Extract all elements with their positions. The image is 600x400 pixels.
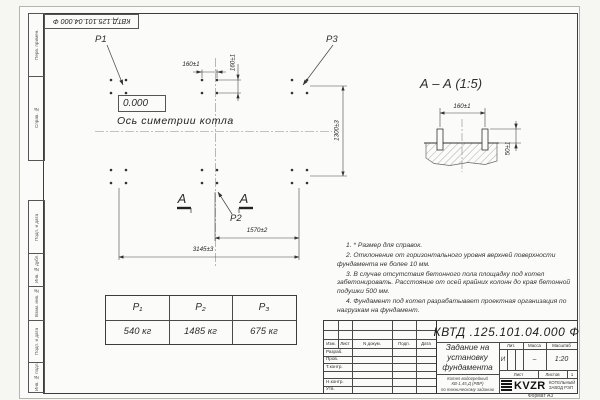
kvzr-logo-icon bbox=[501, 380, 512, 391]
plan-centerlines bbox=[95, 58, 332, 268]
plan-dim-160-horizontal bbox=[193, 70, 226, 79]
point-label-p1: P1 bbox=[95, 34, 107, 45]
row-label-nkontr: Н.контр. bbox=[326, 379, 344, 384]
mass-header: Масса bbox=[523, 342, 546, 349]
section-view-title: А – А (1:5) bbox=[396, 76, 506, 91]
plan-dim-1300 bbox=[310, 86, 347, 176]
dim-label-1570: 1570±2 bbox=[237, 227, 277, 234]
drawing-sheet: kvzr.ru kvzr.ru kvzr.ru kvzr.ru kvzr.ru … bbox=[0, 0, 600, 400]
note-4: 4. Фундамент под котел разрабатывает про… bbox=[337, 298, 580, 316]
sheets-label: Листов bbox=[538, 370, 567, 378]
col-header-podp: Подп. bbox=[392, 339, 416, 348]
logo-text: KVZR bbox=[514, 379, 548, 393]
dim-label-160h: 160±1 bbox=[173, 61, 209, 68]
section-letter-right: А bbox=[236, 191, 252, 205]
company-line: ЗАВОД РЭП bbox=[549, 385, 575, 390]
drawing-title-line: установку bbox=[436, 353, 499, 363]
load-table-value-p1: 540 кг bbox=[106, 320, 169, 343]
point-label-p3: P3 bbox=[326, 34, 338, 45]
load-table: P₁ P₂ P₃ 540 кг 1485 кг 675 кг bbox=[105, 295, 297, 345]
col-header-list: Лист bbox=[338, 339, 352, 348]
sheets-value: 1 bbox=[567, 370, 577, 378]
dim-label-3145: 3145±3 bbox=[183, 246, 223, 253]
drawing-title: Задание на установку фундамента bbox=[436, 343, 499, 373]
sheet-label: Лист bbox=[499, 370, 538, 378]
load-table-value-p2: 1485 кг bbox=[169, 320, 232, 343]
dim-label-1300: 1300±3 bbox=[334, 113, 341, 149]
section-letter-left: А bbox=[174, 191, 190, 205]
anchor-bolt bbox=[482, 129, 488, 150]
note-1: 1. * Размер для справок. bbox=[337, 242, 580, 251]
anchor-bolt bbox=[437, 129, 443, 150]
note-2: 2. Отклонение от горизонтального уровня … bbox=[337, 252, 580, 270]
load-table-header-p1: P₁ bbox=[106, 296, 169, 319]
format-label: Формат А3 bbox=[505, 393, 576, 399]
mass-value: – bbox=[523, 349, 546, 370]
load-table-value-p3: 675 кг bbox=[232, 320, 296, 343]
row-label-tkontr: Т.контр. bbox=[326, 364, 343, 369]
dim-label-sec-160: 160±1 bbox=[444, 103, 480, 110]
elevation-mark: 0.000 bbox=[118, 95, 166, 112]
company-name: КОТЕЛЬНЫЙ ЗАВОД РЭП bbox=[549, 380, 575, 391]
lit-header: Лит. bbox=[499, 342, 523, 349]
load-table-header-p3: P₃ bbox=[232, 296, 296, 319]
drawing-title-line: фундамента bbox=[436, 363, 499, 373]
scale-value: 1:20 bbox=[546, 349, 577, 370]
axis-label: Ось симетрии котла bbox=[117, 115, 234, 127]
product-line: по техническому заданию bbox=[436, 387, 499, 393]
note-3: 3. В случае отсутствия бетонного пола пл… bbox=[337, 271, 580, 298]
notes-block: 1. * Размер для справок. 2. Отклонение о… bbox=[337, 242, 580, 317]
drawing-title-line: Задание на bbox=[436, 343, 499, 353]
scale-header: Масштаб bbox=[546, 342, 577, 349]
col-header-izm: Изм. bbox=[324, 339, 338, 348]
row-label-razrab: Разраб. bbox=[326, 349, 343, 354]
elevation-value: 0.000 bbox=[119, 98, 148, 109]
doc-number: КВТД .125.101.04.000 Ф bbox=[436, 321, 577, 342]
product-designation: Котел водогрейный КВ-1,45 Д (РВР) по тех… bbox=[436, 376, 499, 393]
col-header-ndokum: N докум. bbox=[352, 339, 392, 348]
row-label-prov: Пров. bbox=[326, 356, 338, 361]
dim-label-160v: 160±1 bbox=[230, 45, 237, 81]
load-table-header-p2: P₂ bbox=[169, 296, 232, 319]
dim-label-sec-50: 50±1 bbox=[505, 133, 512, 165]
point-label-p2: P2 bbox=[230, 213, 242, 224]
lit-value: И bbox=[499, 349, 507, 370]
title-block: Изм. Лист N докум. Подп. Дата Разраб. Пр… bbox=[323, 320, 578, 394]
col-header-data: Дата bbox=[416, 339, 436, 348]
row-label-utv: Утв. bbox=[326, 386, 335, 391]
